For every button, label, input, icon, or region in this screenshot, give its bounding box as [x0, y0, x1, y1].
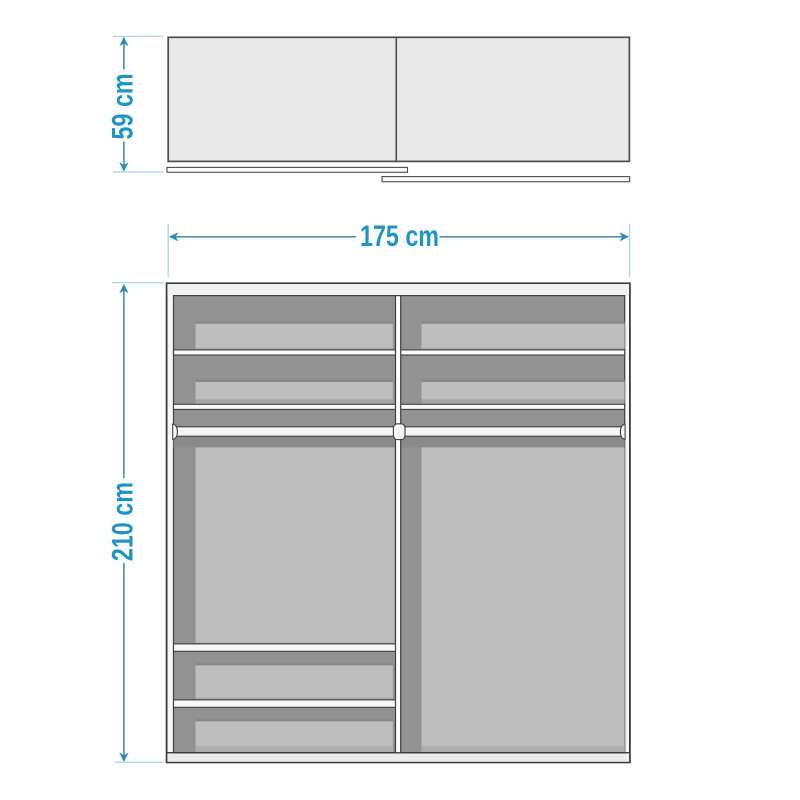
svg-text:59 cm: 59 cm — [106, 73, 139, 139]
svg-text:175 cm: 175 cm — [360, 220, 439, 253]
svg-text:210 cm: 210 cm — [106, 482, 139, 561]
